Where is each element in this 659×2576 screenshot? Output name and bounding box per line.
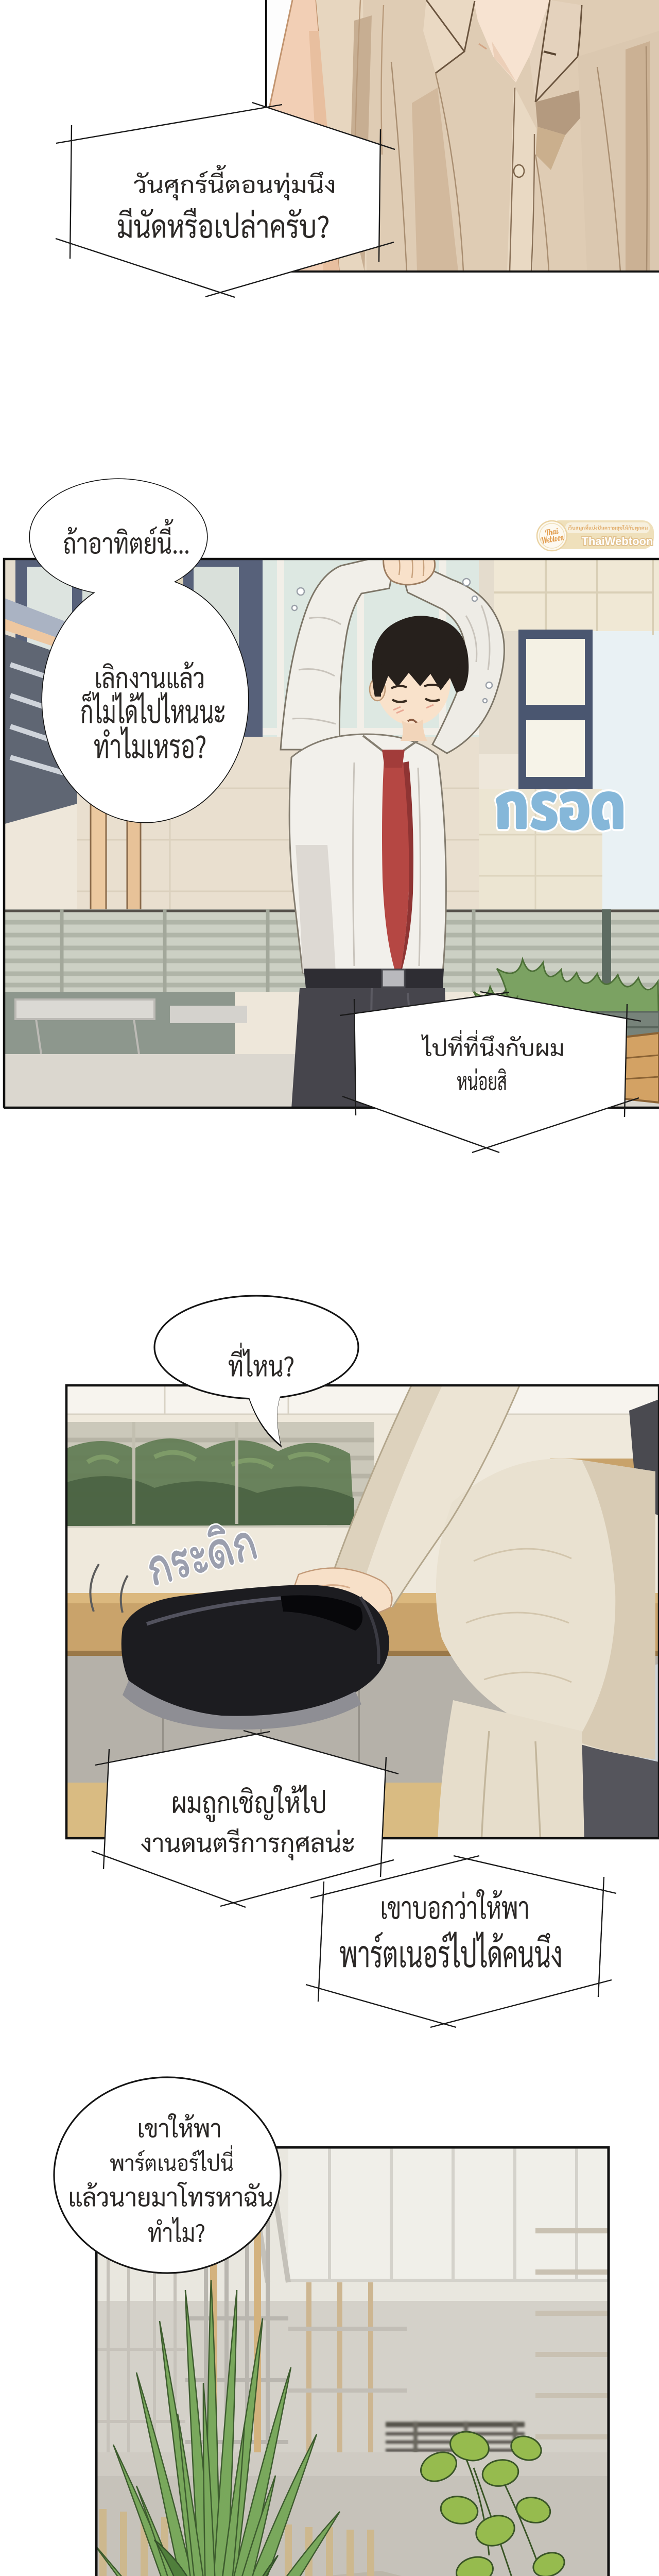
svg-text:ThaiWebtoon: ThaiWebtoon [582,535,653,548]
